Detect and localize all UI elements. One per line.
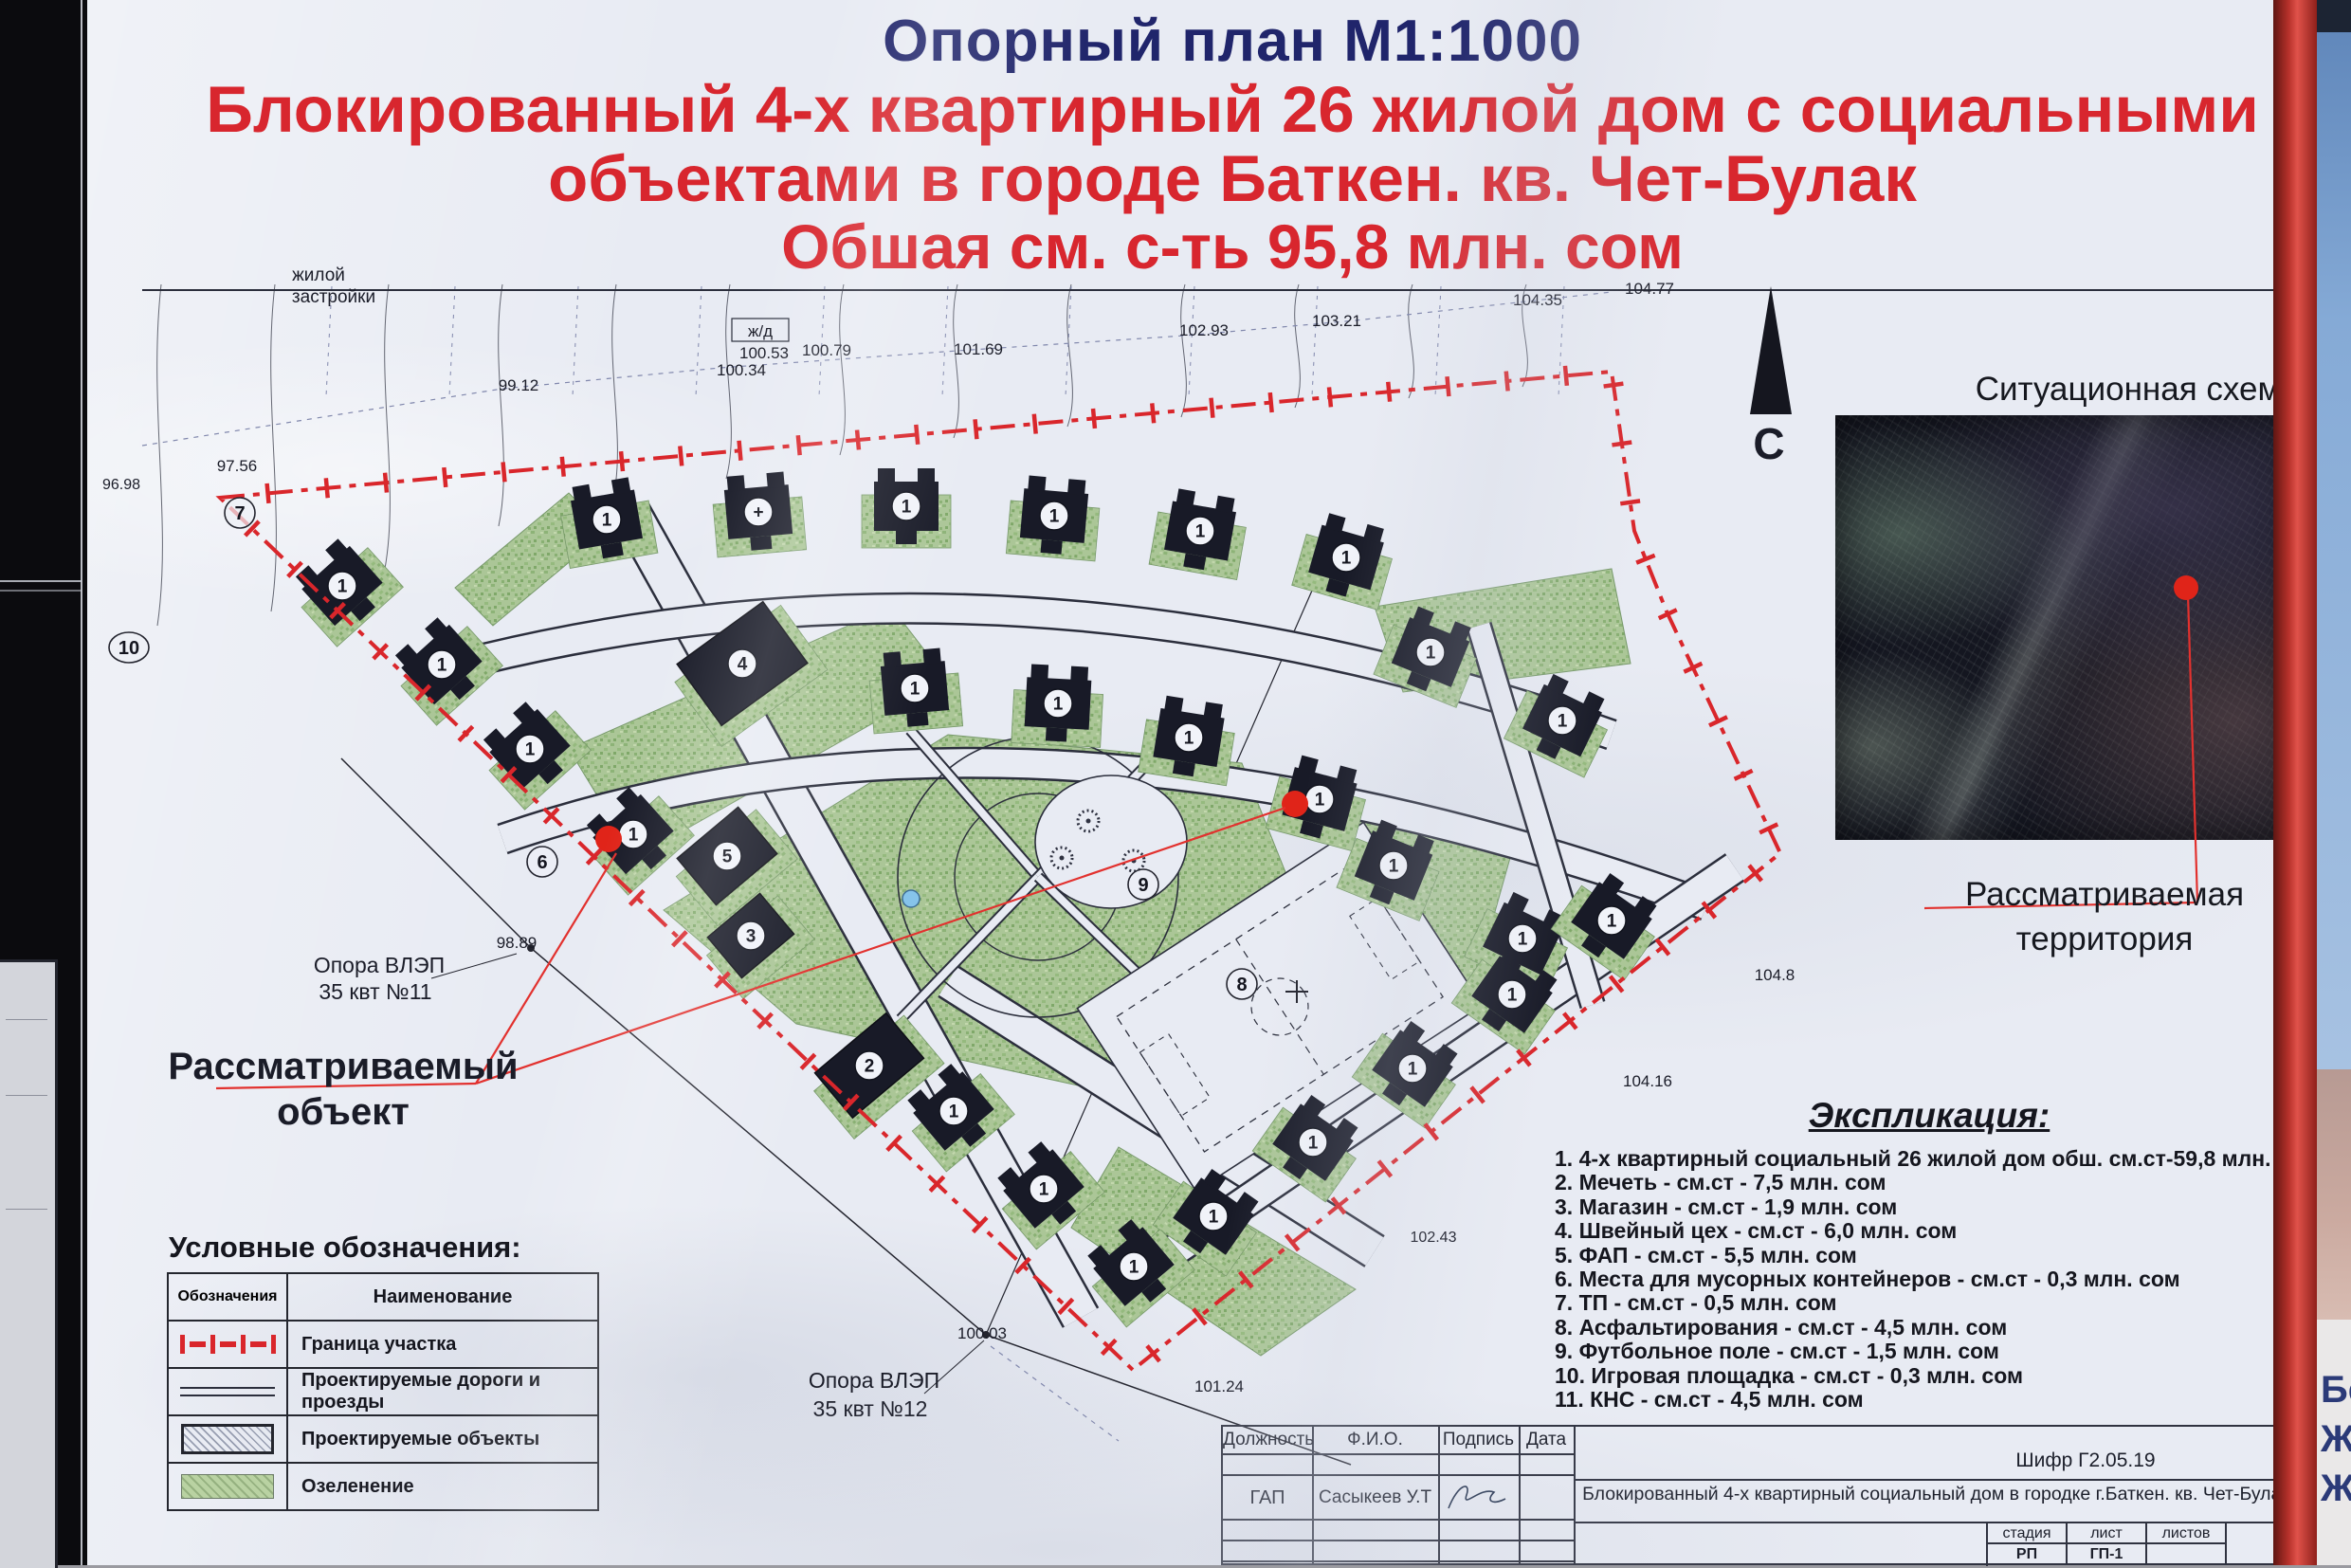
plan-label: 104.35 — [1513, 291, 1562, 309]
contour-line — [954, 284, 959, 438]
plan-label: ж/д — [748, 322, 773, 340]
plan-label: 35 квт №12 — [813, 1396, 928, 1421]
building-number: 2 — [865, 1057, 875, 1077]
explication-item: 7. ТП - см.ст - 0,5 млн. сом — [1555, 1291, 2313, 1315]
parcel-line — [1435, 286, 1441, 396]
contour-line — [1409, 284, 1414, 398]
contour-line — [157, 284, 163, 626]
explication-item: 10. Игровая площадка - см.ст - 0,3 млн. … — [1555, 1364, 2313, 1388]
tb-line — [1574, 1479, 2298, 1481]
tb-line — [1223, 1474, 1574, 1476]
explication-item: 5. ФАП - см.ст - 5,5 млн. сом — [1555, 1244, 2313, 1267]
building-number: 1 — [1039, 1180, 1049, 1200]
building-number: 1 — [1607, 912, 1617, 932]
building-number: 1 — [1507, 986, 1518, 1006]
parcel-line — [449, 286, 455, 396]
plan-label: 97.56 — [217, 457, 258, 475]
partial-text: БетоЖЧКЖето — [2321, 1365, 2351, 1513]
plan-label: 104.8 — [1755, 966, 1795, 984]
roads-symbol — [169, 1369, 288, 1414]
plan-label: 99.12 — [499, 376, 539, 394]
parcel-line — [696, 286, 702, 396]
plan-label: 101.24 — [1194, 1377, 1244, 1395]
red-marker-dot — [1282, 791, 1308, 817]
building-number: 1 — [337, 577, 348, 597]
signature — [1443, 1480, 1515, 1518]
building-number: 1 — [902, 498, 912, 518]
legend-label: Озеленение — [288, 1464, 597, 1509]
pond — [902, 890, 920, 907]
contour-line — [1295, 284, 1301, 408]
legend-table: Обозначения Наименование Граница участка… — [167, 1272, 599, 1511]
circled-number-text: 10 — [118, 638, 139, 659]
legend-label: Проектируемые объекты — [288, 1416, 597, 1462]
plan-label: Опора ВЛЭП — [809, 1368, 939, 1393]
plan-label: 100.03 — [957, 1324, 1007, 1342]
plan-label: застройки — [292, 287, 375, 307]
building-number: 1 — [1518, 930, 1528, 950]
plan-label: 102.43 — [1411, 1230, 1457, 1246]
explication-list: 1. 4-х квартирный социальный 26 жилой до… — [1555, 1147, 2313, 1412]
plan-label: Опора ВЛЭП — [314, 953, 445, 977]
building-number: 1 — [1426, 644, 1436, 664]
contour-line — [840, 284, 846, 455]
legend-header-row: Обозначения Наименование — [169, 1274, 597, 1320]
plan-label: 100.53 — [739, 344, 789, 362]
plan-label: 103.21 — [1312, 312, 1361, 330]
photo-sliver — [2317, 1069, 2351, 1320]
explication-item: 4. Швейный цех - см.ст - 6,0 млн. сом — [1555, 1219, 2313, 1243]
building-number: 1 — [1558, 712, 1568, 732]
tb-gap-name: Сасыкеев У.Т — [1312, 1487, 1438, 1508]
stage-value — [2147, 1544, 2227, 1565]
stage-table: стадиялистлистовРПГП-1 — [1986, 1522, 2227, 1566]
plan-label: Рассматриваемый — [168, 1046, 518, 1087]
plan-label: 104.16 — [1623, 1072, 1672, 1090]
building-number: 1 — [1389, 857, 1399, 877]
legend-row: Проектируемые объекты — [169, 1414, 597, 1462]
building-number: 1 — [949, 1103, 959, 1122]
contour-line — [385, 284, 391, 569]
building-number: 1 — [1129, 1258, 1139, 1278]
contour-dashed — [142, 292, 1612, 446]
stage-value: ГП-1 — [2068, 1544, 2147, 1565]
territory-label-line1: Рассматриваемая — [1915, 872, 2294, 917]
building-number: 1 — [1049, 507, 1060, 527]
red-leader-line — [2188, 594, 2197, 903]
tb-line — [1223, 1560, 1574, 1562]
legend-label: Проектируемые дороги и проезды — [288, 1369, 597, 1414]
circled-number-text: 6 — [537, 852, 547, 873]
stage-header: лист — [2068, 1523, 2147, 1544]
tb-header-name: Ф.И.О. — [1312, 1430, 1438, 1450]
project-name: Блокированный 4-х квартирный социальный … — [1581, 1484, 2290, 1505]
north-arrow — [1750, 286, 1792, 414]
explication-item: 6. Места для мусорных контейнеров - см.с… — [1555, 1267, 2313, 1291]
building-number: 1 — [1341, 549, 1352, 569]
poster-titles: Опорный план М1:1000 Блокированный 4-х к… — [142, 0, 2323, 280]
banner-red-frame — [2273, 0, 2317, 1565]
sheet-line — [6, 1019, 47, 1020]
building-number: 1 — [437, 656, 447, 676]
building-number: 1 — [629, 826, 639, 846]
building-number: 1 — [1184, 729, 1194, 749]
building-number: 5 — [722, 848, 733, 867]
tb-header-date: Дата — [1519, 1430, 1574, 1450]
contour-line — [726, 284, 732, 479]
plan-label: объект — [277, 1091, 410, 1133]
parcel-line — [573, 286, 578, 396]
circled-number-text: 8 — [1236, 975, 1247, 995]
plan-label: С — [1753, 419, 1784, 468]
sheet-line — [6, 1095, 47, 1096]
legend-label: Граница участка — [288, 1322, 597, 1367]
right-neighbour-board: БетоЖЧКЖето — [2317, 0, 2351, 1565]
contour-line — [271, 284, 277, 611]
tb-line — [1223, 1453, 1574, 1455]
building-number: 1 — [910, 680, 920, 700]
plan-label: 98.89 — [497, 934, 538, 952]
explication-item: 8. Асфальтирования - см.ст - 4,5 млн. со… — [1555, 1316, 2313, 1340]
explication-item: 1. 4-х квартирный социальный 26 жилой до… — [1555, 1147, 2313, 1171]
tree-icon — [1060, 856, 1065, 861]
building-number: 1 — [1308, 1134, 1319, 1154]
explication-item: 9. Футбольное поле - см.ст - 1,5 млн. со… — [1555, 1340, 2313, 1363]
plan-label: 96.98 — [102, 477, 140, 493]
explication-item: 2. Мечеть - см.ст - 7,5 млн. сом — [1555, 1171, 2313, 1194]
building-number: 4 — [738, 655, 748, 675]
green-symbol — [169, 1464, 288, 1509]
contour-line — [499, 284, 504, 526]
building-number: 1 — [602, 511, 612, 531]
plan-label: 100.34 — [717, 361, 766, 379]
legend-row: Граница участка — [169, 1320, 597, 1367]
boundary-symbol — [169, 1322, 288, 1367]
sheet-line — [6, 1209, 47, 1210]
parcel-line — [942, 286, 948, 396]
building-number: 1 — [1209, 1208, 1219, 1228]
explication-item: 3. Магазин - см.ст - 1,9 млн. сом — [1555, 1195, 2313, 1219]
tb-line — [1574, 1427, 1576, 1563]
legend-heading: Условные обозначения: — [169, 1231, 521, 1265]
building-number: 1 — [1315, 791, 1325, 811]
building-number: 1 — [1195, 522, 1206, 542]
plan-label: 101.69 — [954, 340, 1003, 358]
parcel-line — [1312, 286, 1318, 396]
dark-corner — [2317, 0, 2351, 32]
contour-dashed — [991, 1346, 1119, 1441]
building-number: 3 — [746, 927, 756, 947]
stage-value: РП — [1988, 1544, 2068, 1565]
left-board-frame-line — [81, 0, 82, 1565]
objects-symbol — [169, 1416, 288, 1462]
plan-label: 102.93 — [1179, 321, 1229, 339]
situational-scheme-title: Ситуационная схема — [1872, 371, 2299, 409]
plan-label: 104.77 — [1625, 280, 1674, 298]
left-bottom-sheet-corner — [0, 959, 58, 1568]
legend-row: Проектируемые дороги и проезды — [169, 1367, 597, 1414]
plan-label: 35 квт №11 — [319, 979, 431, 1004]
left-board-divider — [0, 590, 82, 592]
cost-title: Обшая см. с-ть 95,8 млн. сом — [142, 213, 2323, 280]
subtitle-line2: объектами в городе Баткен. кв. Чет-Булак — [142, 144, 2323, 213]
explication-heading: Экспликация: — [1706, 1096, 2152, 1136]
building-number: 1 — [1408, 1060, 1418, 1080]
legend-col2-header: Наименование — [288, 1274, 597, 1320]
legend-row: Озеленение — [169, 1462, 597, 1509]
playground-oval — [1035, 775, 1187, 908]
stage-header: листов — [2147, 1523, 2227, 1544]
tb-header-position: Должность — [1223, 1430, 1312, 1450]
tb-header-signature: Подпись — [1438, 1430, 1519, 1450]
legend-col1-header: Обозначения — [169, 1274, 288, 1320]
tb-gap-position: ГАП — [1223, 1487, 1312, 1509]
parcel-line — [1189, 286, 1194, 396]
stage-header: стадия — [1988, 1523, 2068, 1544]
territory-label: Рассматриваемая территория — [1915, 872, 2294, 961]
tree-icon — [1086, 819, 1091, 824]
contour-line — [1181, 284, 1187, 417]
territory-label-line2: территория — [1915, 917, 2294, 961]
subtitle-line1: Блокированный 4-х квартирный 26 жилой до… — [142, 75, 2323, 144]
cipher: Шифр Г2.05.19 — [1943, 1449, 2228, 1472]
explication-item: 11. КНС - см.ст - 4,5 млн. сом — [1555, 1388, 2313, 1412]
main-title: Опорный план М1:1000 — [142, 8, 2323, 75]
tb-line — [1223, 1519, 1574, 1521]
circled-number-text: 7 — [234, 503, 245, 524]
building-number: + — [753, 503, 763, 523]
title-block: Должность Ф.И.О. Подпись Дата ГАП Сасыке… — [1221, 1425, 2296, 1565]
sky-sliver — [2317, 0, 2351, 1069]
satellite-red-dot — [2174, 575, 2198, 600]
plan-label: 100.79 — [802, 341, 851, 359]
building-number: 1 — [525, 740, 536, 760]
tb-line — [1223, 1540, 1574, 1541]
building-number: 1 — [1053, 695, 1064, 715]
circled-number-text: 9 — [1138, 875, 1148, 896]
left-board-divider — [0, 580, 82, 582]
contour-line — [612, 284, 618, 502]
